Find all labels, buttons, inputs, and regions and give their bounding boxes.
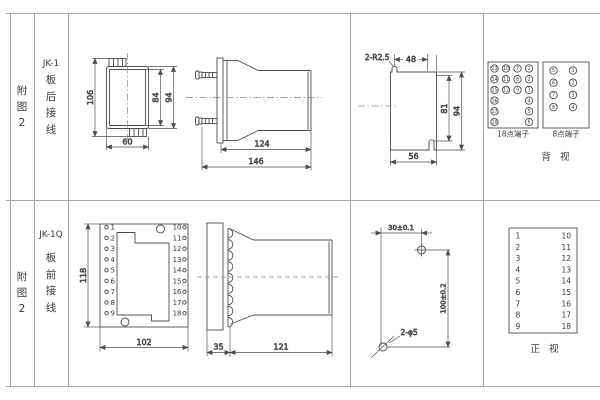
jk1-side-view (186, 58, 322, 143)
terminals-18-grid: 131071141182151293164175186 (491, 65, 533, 126)
model-char: 线 (46, 300, 57, 317)
model-char: 接 (46, 283, 57, 300)
terminal-pin-circle (105, 236, 108, 239)
terminal-number: 15 (173, 277, 182, 285)
terminal-number: 14 (173, 267, 182, 275)
terminal-number: 12 (503, 88, 509, 94)
panel-cutout-dims: 2-R2.5 48 81 94 56 (365, 53, 465, 166)
terminal-number: 2 (571, 80, 574, 86)
terminal-number: 11 (561, 243, 571, 252)
dim-60: 60 (122, 138, 132, 147)
terminal-number: 16 (561, 299, 571, 308)
terminal-number: 4 (516, 265, 521, 274)
slot-radius-label: 2-R2.5 (365, 53, 390, 62)
terminal-pin-circle (183, 258, 186, 261)
terminal-number: 12 (561, 254, 571, 263)
terminals-8-grid: 51627384 (550, 67, 577, 111)
terminal-number: 8 (516, 77, 519, 83)
dim-124: 124 (254, 140, 269, 149)
terminal-number: 5 (111, 267, 115, 275)
terminal-number: 3 (111, 245, 115, 253)
model-char: 板 (46, 72, 57, 89)
dim-94-cutout: 94 (453, 106, 462, 116)
model-char: 板 (46, 250, 57, 267)
front-view-left-terminals: 123456789 (105, 224, 116, 318)
terminal-number: 13 (173, 256, 182, 264)
dim-48: 48 (406, 55, 416, 64)
terminal-number: 7 (516, 299, 521, 308)
model-char: 线 (46, 122, 57, 139)
drilling-plan: 30±0.1 100±0.2 2-φ5 (371, 224, 450, 358)
terminal-number: 6 (527, 120, 530, 126)
terminal-pin-circle (105, 225, 108, 228)
terminal-pin-circle (183, 290, 186, 293)
terminal-number: 9 (111, 310, 115, 318)
jk1q-side-view (197, 223, 340, 330)
terminal-number: 17 (173, 299, 182, 307)
model-title: JK-1Q (39, 228, 63, 243)
terminal-number: 6 (516, 288, 521, 297)
back-view-label: 背 视 (541, 151, 572, 163)
terminal-number: 8 (111, 299, 115, 307)
terminal-table-left: 123456789 (516, 232, 521, 331)
terminal-number: 16 (491, 98, 497, 104)
fig-label-back: 附 图 2 (10, 13, 34, 200)
terminal-number: 14 (491, 77, 497, 83)
terminal-pin-circle (183, 279, 186, 282)
terminal-number: 8 (516, 311, 521, 320)
terminal-number: 10 (503, 66, 509, 72)
dim-94: 94 (165, 92, 174, 102)
terminal-pin-circle (105, 290, 108, 293)
dim-30: 30±0.1 (388, 224, 414, 232)
terminal-number: 15 (491, 88, 497, 94)
dim-100: 100±0.2 (440, 283, 448, 313)
terminal-number: 11 (173, 234, 182, 242)
terminal-number: 3 (527, 88, 530, 94)
terminal-number: 18 (173, 310, 182, 318)
dim-118: 118 (79, 268, 88, 283)
terminal-pin-circle (105, 279, 108, 282)
jk1q-side-dims: 35 121 (207, 315, 332, 357)
jk1-face-view (107, 53, 149, 142)
terminal-number: 9 (516, 322, 521, 331)
terminal-number: 16 (173, 288, 182, 296)
terminal-number: 3 (516, 254, 521, 263)
terminal-pin-circle (183, 247, 186, 250)
terminals-8-label: 8点端子 (552, 129, 580, 139)
fig-char: 2 (19, 115, 26, 131)
front-view-right-terminals: 101112131415161718 (173, 224, 187, 318)
terminal-pin-circle (183, 225, 186, 228)
terminal-number: 15 (561, 288, 571, 297)
fig-char: 附 (17, 269, 28, 285)
terminal-number: 10 (173, 224, 182, 232)
front-view-label: 正 视 (530, 343, 561, 355)
fig-char: 附 (17, 83, 28, 99)
terminal-number: 7 (516, 66, 519, 72)
terminal-number: 6 (552, 80, 555, 86)
terminal-number: 1 (516, 232, 521, 241)
fig-label-front: 附 图 2 (10, 200, 34, 386)
terminal-number: 18 (491, 120, 497, 126)
terminals-18-label: 18点端子 (497, 129, 530, 139)
terminal-number: 13 (491, 66, 497, 72)
jk1-side-dims: 124 146 (202, 127, 311, 171)
terminal-number: 5 (527, 109, 530, 115)
model-char: 接 (46, 105, 57, 122)
dim-35: 35 (213, 343, 223, 352)
terminal-pin-circle (105, 247, 108, 250)
terminal-number: 7 (552, 93, 555, 99)
terminal-pin-circle (105, 311, 108, 314)
figure-page: 106 84 94 60 124 146 (0, 0, 600, 400)
terminal-number: 1 (571, 68, 574, 74)
dim-84: 84 (152, 92, 161, 102)
terminal-number: 2 (516, 243, 521, 252)
terminal-number: 1 (111, 224, 115, 232)
terminal-number: 4 (111, 256, 116, 264)
terminal-pin-circle (183, 268, 186, 271)
model-title: JK-1 (43, 57, 60, 72)
fig-char: 图 (17, 285, 28, 301)
terminal-number: 1 (527, 66, 530, 72)
terminal-number: 18 (561, 322, 571, 331)
terminal-number: 2 (527, 77, 530, 83)
terminal-pin-circle (183, 311, 186, 314)
terminal-number: 4 (571, 105, 574, 111)
terminal-number: 7 (111, 288, 115, 296)
terminal-number: 13 (561, 265, 571, 274)
dim-146: 146 (248, 157, 263, 166)
dim-56: 56 (408, 152, 418, 161)
terminal-number: 8 (552, 105, 555, 111)
terminal-pin-circle (105, 301, 108, 304)
terminal-number: 5 (516, 277, 521, 286)
fig-char: 图 (17, 99, 28, 115)
panel-cutout (358, 66, 437, 150)
terminal-number: 11 (503, 77, 509, 83)
terminal-number: 5 (552, 68, 555, 74)
terminal-number: 12 (173, 245, 182, 253)
terminal-number: 2 (111, 234, 115, 242)
terminal-pin-circle (105, 258, 108, 261)
model-char: 前 (46, 267, 57, 284)
model-label-back: JK-1 板 后 接 线 (34, 13, 68, 200)
terminal-number: 10 (561, 232, 571, 241)
terminal-pin-circle (183, 236, 186, 239)
terminal-number: 14 (561, 277, 571, 286)
terminal-pin-circle (105, 268, 108, 271)
model-char: 后 (46, 89, 57, 106)
terminal-number: 4 (527, 98, 530, 104)
terminal-number: 3 (571, 93, 574, 99)
terminal-pin-circle (183, 301, 186, 304)
dim-102: 102 (136, 338, 151, 347)
dim-81: 81 (440, 103, 449, 113)
dim-121: 121 (273, 343, 288, 352)
dim-106: 106 (86, 90, 95, 105)
terminal-number: 9 (516, 88, 519, 94)
drawing-canvas: 106 84 94 60 124 146 (0, 0, 600, 400)
terminal-number: 6 (111, 277, 116, 285)
holes-label: 2-φ5 (401, 328, 418, 337)
fig-char: 2 (19, 301, 26, 317)
terminal-number: 17 (561, 311, 571, 320)
terminal-number: 17 (491, 109, 497, 115)
model-label-front: JK-1Q 板 前 接 线 (34, 200, 68, 386)
terminal-table-right: 101112131415161718 (561, 232, 571, 331)
